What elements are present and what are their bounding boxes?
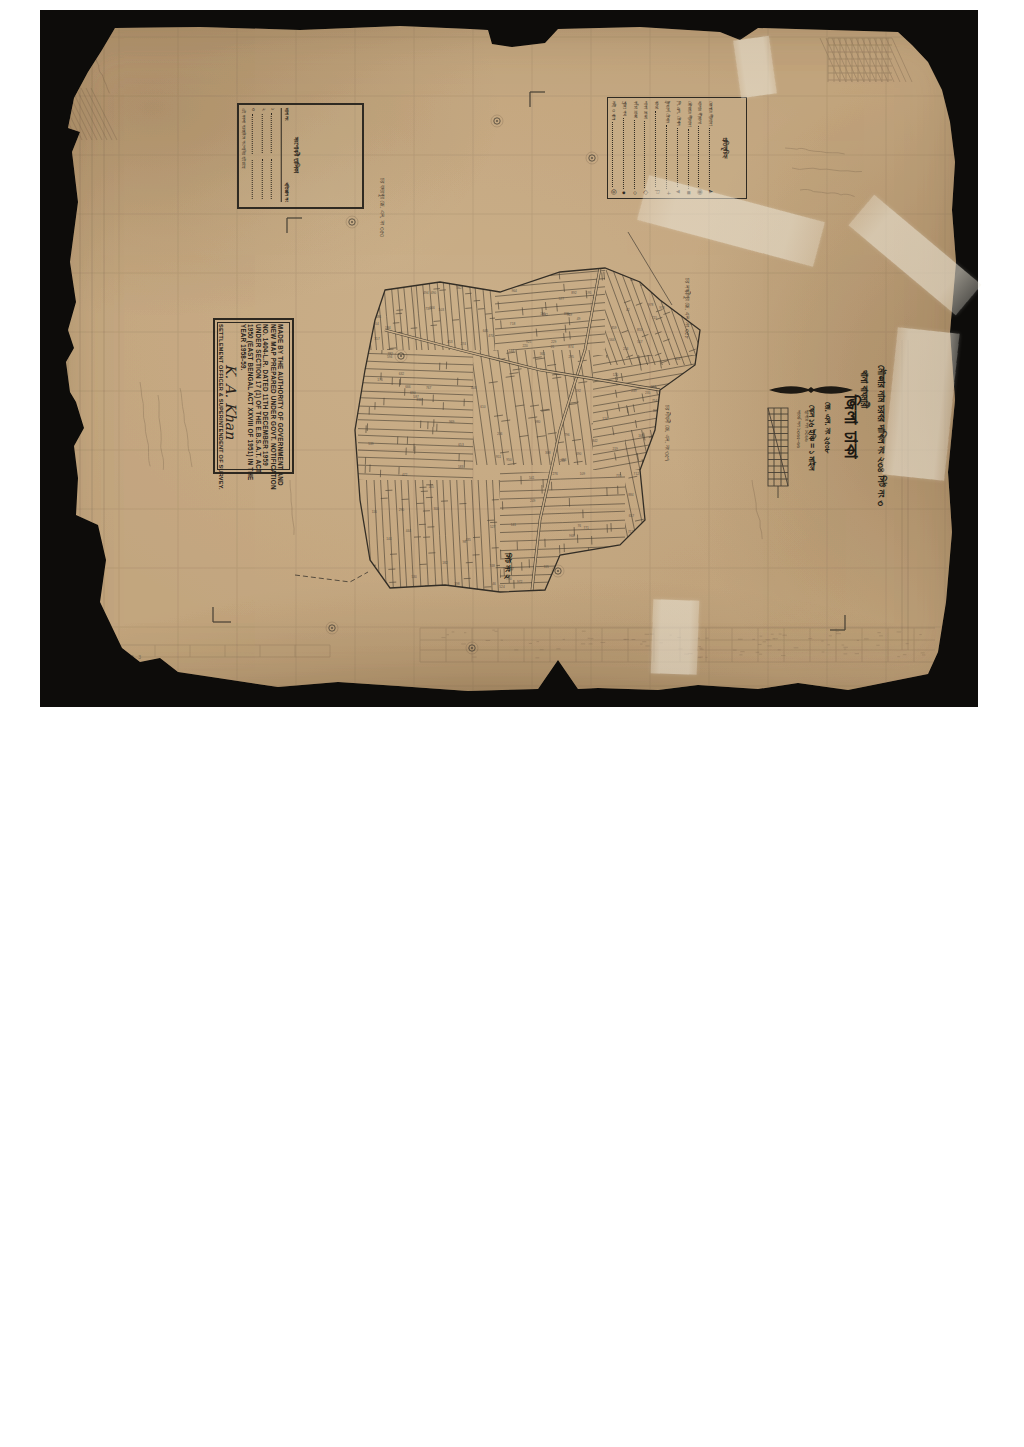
svg-text:408: 408 [685, 388, 691, 392]
svg-text:144: 144 [386, 537, 392, 541]
scanned-map-page: 4903574946464557550356643622744534867395… [0, 0, 1024, 1447]
svg-text:359: 359 [656, 451, 662, 455]
svg-text:490: 490 [431, 291, 437, 295]
svg-text:216: 216 [623, 347, 629, 351]
svg-text:930: 930 [641, 278, 647, 282]
legend-item: জেলার সীমানা▲ [707, 101, 718, 195]
svg-text:169: 169 [579, 581, 585, 585]
svg-text:855: 855 [637, 328, 643, 332]
svg-text:884: 884 [628, 493, 634, 497]
svg-text:978: 978 [648, 303, 654, 307]
svg-text:120: 120 [613, 373, 619, 377]
print-year-note: ছাপার সন ১৩৬৬ [802, 410, 810, 495]
revision-col-plot: দাগ নং [283, 108, 290, 121]
svg-text:842: 842 [592, 439, 598, 443]
svg-text:472: 472 [402, 473, 408, 477]
svg-text:739: 739 [425, 307, 431, 311]
stamp-line: 1950 (EAST BENGAL ACT XXVIII OF 1951) IN… [246, 324, 253, 468]
svg-text:951: 951 [496, 455, 502, 459]
revision-row: ৩ [250, 108, 260, 202]
svg-text:713: 713 [360, 364, 366, 368]
svg-text:46: 46 [492, 582, 496, 586]
svg-text:972: 972 [517, 580, 523, 584]
revision-table-box: সংশোধনী তালিকা দাগ নং খতিয়ান নং ১ ২ ৩ এ… [237, 103, 364, 209]
svg-text:583: 583 [458, 465, 464, 469]
svg-text:577: 577 [559, 297, 565, 301]
print-year-notes: ছাপার সন ১৩৬৬ সার্ভে সন ১৩৬৫-৬৬ [794, 410, 879, 426]
svg-text:238: 238 [560, 459, 566, 463]
svg-text:362: 362 [456, 286, 462, 290]
svg-text:219: 219 [612, 447, 618, 451]
svg-text:450: 450 [674, 507, 680, 511]
legend-item: নদী ও খাল◎ [610, 101, 621, 195]
svg-text:229: 229 [551, 340, 557, 344]
svg-text:470: 470 [488, 334, 494, 338]
svg-text:274: 274 [461, 342, 467, 346]
svg-text:192: 192 [576, 389, 582, 393]
svg-text:49: 49 [577, 317, 581, 321]
svg-text:632: 632 [399, 372, 405, 376]
svg-text:21: 21 [551, 345, 555, 349]
svg-text:124: 124 [602, 417, 608, 421]
stamp-designation: SETTLEMENT OFFICER & SUPERINTENDENT OF S… [218, 324, 224, 468]
svg-text:170: 170 [377, 378, 383, 382]
svg-text:517: 517 [637, 340, 643, 344]
svg-text:541: 541 [529, 476, 535, 480]
svg-text:398: 398 [565, 262, 571, 266]
map-drawing: 4903574946464557550356643622744534867395… [40, 10, 978, 707]
revision-row: ১ [269, 108, 279, 202]
stamp-line: YEAR 1958-59. [239, 324, 246, 468]
svg-text:629: 629 [674, 444, 680, 448]
stamp-line: NO. 1404-L.R. DATED 11TH DECEMBER 1959 [261, 324, 268, 468]
svg-text:165: 165 [429, 485, 435, 489]
legend-item: সি.এস. ষ্টেশন▼ [675, 101, 686, 195]
svg-text:424: 424 [675, 357, 681, 361]
svg-text:645: 645 [483, 329, 489, 333]
svg-text:719: 719 [697, 453, 703, 457]
svg-text:847: 847 [654, 458, 660, 462]
unmetalled-road-symbol: ○ [632, 191, 639, 195]
svg-text:771: 771 [584, 526, 590, 530]
svg-text:295: 295 [568, 355, 574, 359]
svg-text:905: 905 [676, 498, 682, 502]
svg-text:410: 410 [697, 310, 703, 314]
svg-text:503: 503 [439, 308, 445, 312]
stamp-line: UNDER SECTION 17 (1) OF THE E.B.S.A.T. A… [254, 324, 261, 468]
legend-item: কাঁচা রাস্তা○ [632, 101, 643, 195]
svg-text:575: 575 [471, 276, 477, 280]
legend-item: মৌজার সীমানা■ [686, 101, 697, 195]
svg-text:859: 859 [611, 326, 617, 330]
svg-text:64: 64 [375, 322, 379, 326]
svg-text:206: 206 [497, 432, 503, 436]
svg-text:610: 610 [480, 405, 486, 409]
svg-text:666: 666 [405, 385, 411, 389]
adjacent-mouza-label-west: চর বদরপুর জে. এল. নং ৩৫৩ [378, 178, 466, 186]
legend-header: প্রতিভূচিহ্ন [721, 101, 729, 195]
svg-text:115: 115 [544, 565, 549, 569]
svg-text:805: 805 [665, 503, 671, 507]
river-symbol: ◎ [610, 189, 617, 195]
svg-text:235: 235 [645, 391, 651, 395]
svg-text:76: 76 [578, 524, 582, 528]
legend-item: থানার সীমানা◉ [696, 101, 707, 195]
svg-text:332: 332 [542, 313, 548, 317]
svg-text:796: 796 [564, 433, 570, 437]
svg-text:715: 715 [652, 316, 658, 320]
svg-text:403: 403 [471, 386, 477, 390]
svg-text:530: 530 [411, 575, 417, 579]
svg-text:300: 300 [434, 507, 440, 511]
svg-text:969: 969 [567, 313, 573, 317]
svg-text:980: 980 [535, 420, 541, 424]
svg-text:250: 250 [662, 528, 668, 532]
revision-table-title: সংশোধনী তালিকা [292, 108, 300, 202]
svg-text:754: 754 [652, 399, 658, 403]
svg-text:249: 249 [530, 499, 536, 503]
revision-col-khatian: খতিয়ান নং [283, 182, 290, 202]
svg-text:527: 527 [490, 525, 496, 529]
svg-text:712: 712 [634, 472, 640, 476]
svg-text:950: 950 [506, 458, 512, 462]
svg-text:133: 133 [379, 588, 385, 592]
svg-text:573: 573 [676, 295, 682, 299]
officer-signature: K. A. Khan [224, 364, 238, 468]
svg-text:168: 168 [638, 434, 644, 438]
map-paper-sheet: 4903574946464557550356643622744534867395… [40, 10, 978, 707]
svg-text:748: 748 [489, 564, 495, 568]
svg-text:239: 239 [631, 389, 637, 393]
svg-text:290: 290 [399, 508, 405, 512]
svg-text:657: 657 [629, 514, 635, 518]
svg-text:767: 767 [426, 386, 432, 390]
svg-text:475: 475 [689, 434, 695, 438]
svg-text:195: 195 [586, 291, 592, 295]
svg-text:109: 109 [580, 472, 586, 476]
adjacent-mouza-label-southeast: চর দীঘলী জে. এল. নং ৩৫৭ [663, 405, 723, 413]
svg-text:276: 276 [552, 472, 558, 476]
repair-tape [651, 599, 700, 675]
svg-text:892: 892 [571, 291, 577, 295]
svg-text:917: 917 [655, 464, 661, 468]
government-stamp: MADE BY THE AUTHORITY OF GOVERNMENT AND … [213, 318, 294, 474]
svg-text:838: 838 [416, 398, 422, 402]
svg-text:978: 978 [659, 306, 665, 310]
svg-text:435: 435 [465, 538, 471, 542]
legend-item: গ্রাম্য পথ● [621, 101, 632, 195]
svg-text:964: 964 [512, 289, 518, 293]
svg-text:968: 968 [569, 534, 575, 538]
svg-text:718: 718 [510, 322, 516, 326]
stamp-line: NEW MAP PREPARED UNDER GOVT. NOTIFICATIO… [269, 324, 276, 468]
svg-text:144: 144 [509, 349, 515, 353]
svg-text:398: 398 [454, 582, 460, 586]
sheet-number-faint-print: SHEET NO 3 [98, 654, 143, 660]
svg-text:42: 42 [626, 308, 630, 312]
svg-text:449: 449 [680, 428, 686, 432]
svg-text:945: 945 [673, 429, 679, 433]
svg-text:594: 594 [387, 355, 393, 359]
svg-text:113: 113 [655, 484, 660, 488]
svg-text:494: 494 [423, 291, 429, 295]
svg-text:801: 801 [699, 457, 705, 461]
svg-text:770: 770 [616, 474, 622, 478]
scanner-bed: 4903574946464557550356643622744534867395… [40, 10, 978, 707]
svg-text:539: 539 [368, 442, 374, 446]
svg-text:564: 564 [609, 338, 615, 342]
svg-text:690: 690 [576, 452, 582, 456]
survey-year-note: সার্ভে সন ১৩৬৫-৬৬ [794, 410, 802, 495]
svg-text:116: 116 [372, 510, 377, 514]
svg-text:357: 357 [374, 337, 380, 341]
svg-text:618: 618 [585, 554, 591, 558]
adjacent-mouza-label-east: চর লক্ষ্মীপুর জে. এল. নং ৩৫৮ [683, 278, 761, 286]
svg-text:220: 220 [523, 344, 529, 348]
stamp-line: MADE BY THE AUTHORITY OF GOVERNMENT AND [276, 324, 283, 468]
svg-text:969: 969 [449, 420, 455, 424]
svg-text:361: 361 [540, 352, 546, 356]
svg-text:141: 141 [511, 523, 517, 527]
revision-table-footer: এই নকশা সরজমিনে সংশোধিত হইয়াছে [241, 108, 247, 202]
adjacent-sheet-label: সিট নং ২ [502, 553, 550, 564]
svg-text:182: 182 [442, 561, 448, 565]
svg-text:453: 453 [447, 340, 453, 344]
revision-row: ২ [260, 108, 270, 202]
svg-text:874: 874 [568, 345, 574, 349]
svg-text:368: 368 [545, 451, 551, 455]
village-path-symbol: ● [621, 191, 628, 195]
svg-text:653: 653 [458, 443, 464, 447]
svg-text:444: 444 [406, 529, 412, 533]
